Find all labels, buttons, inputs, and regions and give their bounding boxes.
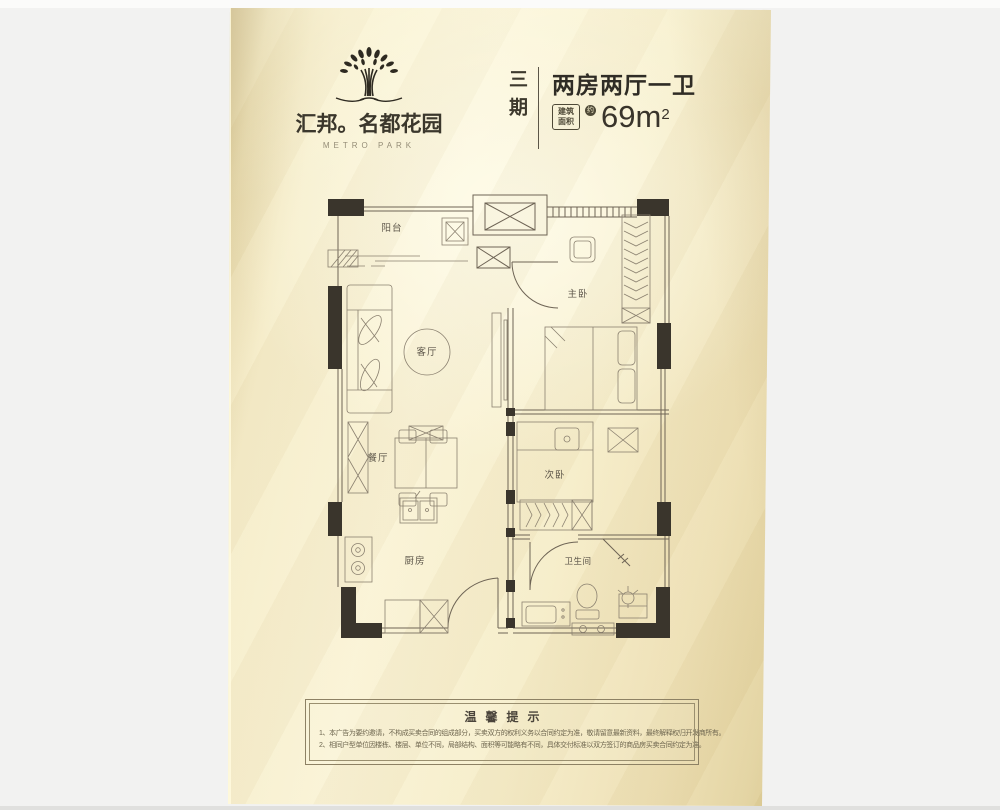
phase-label: 三期 (503, 69, 530, 125)
floor-plan: 阳台 客厅 主卧 餐厅 次卧 厨房 卫生间 (325, 190, 675, 670)
room-label-kitchen: 厨房 (404, 555, 425, 567)
room-label-second-bedroom: 次卧 (544, 469, 565, 481)
tips-inner-border (309, 703, 695, 761)
header-divider (538, 67, 539, 149)
brand-name: 汇邦。名都花园 (283, 108, 455, 138)
room-label-balcony: 阳台 (381, 222, 402, 234)
floor-plan-drawing: 阳台 客厅 主卧 餐厅 次卧 厨房 卫生间 (325, 190, 675, 670)
brand-name-en: METRO PARK (283, 141, 455, 150)
poster-background: 汇邦。名都花园 METRO PARK 三期 两房两厅一卫 建筑 面积 约 69m… (0, 0, 1000, 810)
area-row: 建筑 面积 约 69m2 (552, 99, 670, 135)
area-value: 69m2 (601, 99, 670, 135)
area-superscript: 2 (661, 106, 669, 123)
top-edge (0, 0, 1000, 8)
tips-box: 温馨提示 1、本广告为要约邀请，不构成买卖合同的组成部分，买卖双方的权利义务以合… (305, 699, 699, 765)
approx-badge: 约 (585, 105, 596, 116)
room-label-living: 客厅 (416, 346, 437, 358)
area-label-line1: 建筑 (555, 107, 577, 117)
room-label-master-bedroom: 主卧 (567, 288, 588, 300)
area-number: 69m (601, 99, 661, 134)
unit-type-title: 两房两厅一卫 (552, 66, 696, 100)
room-label-dining: 餐厅 (367, 452, 388, 464)
bottom-edge (0, 806, 1000, 810)
tree-logo-icon (324, 44, 414, 106)
area-label-box: 建筑 面积 (552, 104, 580, 130)
brand-block: 汇邦。名都花园 METRO PARK (283, 44, 455, 150)
room-label-bathroom: 卫生间 (564, 556, 591, 566)
area-label-line2: 面积 (555, 117, 577, 127)
